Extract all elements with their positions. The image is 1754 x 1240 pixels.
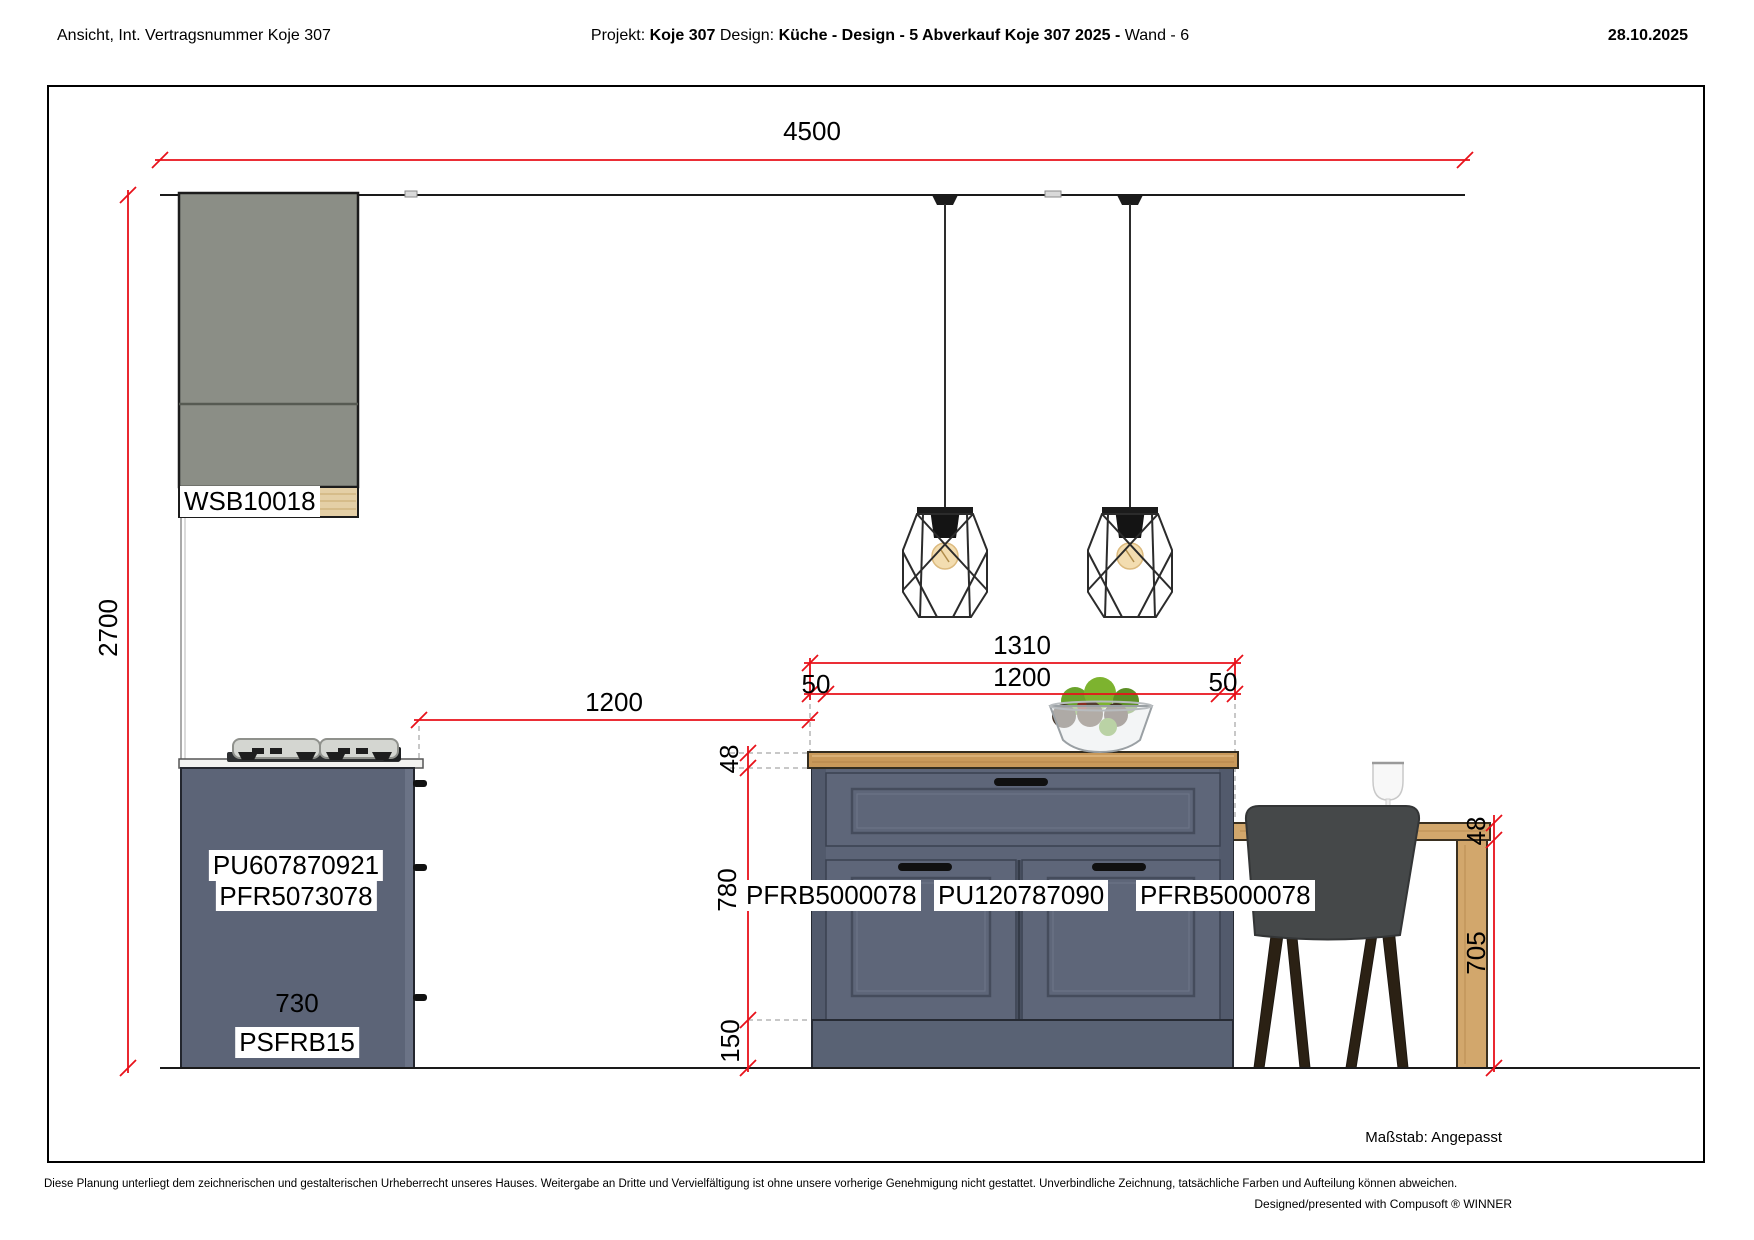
pendant-lamp [903,195,1172,617]
label-island-right: PFRB5000078 [1136,880,1315,911]
ceiling-mark [405,191,417,197]
label-hob-unit-line1: PU607870921 [209,850,383,881]
label-hob-unit-line2: PFR5073078 [215,881,376,912]
dim-counter-thickness: 48 [716,745,742,774]
island-countertop [808,752,1238,768]
bar-chair [1246,806,1419,1068]
chair-backrest [1246,806,1419,940]
label-wall-cabinet: WSB10018 [180,486,320,517]
dim-plinth-height: 150 [717,1019,743,1062]
dim-island-total: 1310 [993,632,1051,658]
dim-bar-thickness: 48 [1463,817,1489,846]
door-handle [898,863,952,871]
label-hob-plinth: PSFRB15 [235,1027,359,1058]
dim-wall-width: 4500 [783,118,841,144]
wall-cabinet [179,193,358,517]
island-plinth [812,1020,1233,1068]
scale-label: Maßstab: Angepasst [1280,1129,1502,1146]
dim-wall-height: 2700 [95,599,121,657]
gas-hob [227,739,401,762]
drawer-handle [994,778,1048,786]
drawing-sheet: Ansicht, Int. Vertragsnummer Koje 307 Pr… [0,0,1754,1240]
dim-hob-unit-width: 730 [275,990,318,1016]
dim-island-front-height: 780 [714,868,740,911]
side-handle [413,864,427,871]
label-hob-unit: PU607870921 PFR5073078 [209,850,383,911]
door-handle [1092,863,1146,871]
dim-island-inner: 1200 [993,664,1051,690]
side-handle [413,780,427,787]
salad-bowl [1050,677,1152,752]
dim-overhang-right: 50 [1209,669,1238,695]
dim-bar-height: 705 [1463,931,1489,974]
dim-overhang-left: 50 [802,671,831,697]
label-island-center: PU120787090 [934,880,1108,911]
side-handle [413,994,427,1001]
label-island-left: PFRB5000078 [742,880,921,911]
ceiling-mark [1045,191,1061,197]
hob-base-unit [179,759,427,1068]
footer-disclaimer: Diese Planung unterliegt dem zeichnerisc… [44,1178,1457,1190]
footer-credit: Designed/presented with Compusoft ® WINN… [1200,1197,1512,1211]
dim-gap: 1200 [585,689,643,715]
